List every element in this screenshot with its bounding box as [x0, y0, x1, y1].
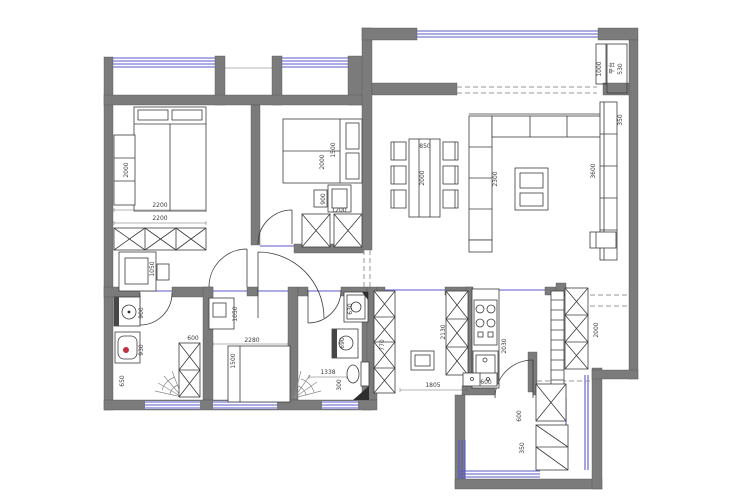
wardrobe-x-cabinet	[302, 214, 362, 247]
bedroom3-furniture	[209, 298, 290, 402]
dim-label: 650	[119, 375, 126, 387]
floor-drain	[353, 386, 369, 400]
vanity-desk	[209, 298, 234, 329]
low-cabinet	[536, 425, 568, 470]
dim-label: 2130	[440, 324, 447, 339]
stool	[411, 351, 434, 370]
dim-label: 530	[617, 63, 624, 75]
shower-spray	[155, 371, 182, 397]
kitchen-balcony-door	[495, 360, 533, 398]
dim-label: 1338	[320, 369, 335, 376]
dim-label: 2000	[419, 170, 426, 185]
dim-label: 3600	[590, 163, 597, 178]
kitchen-furniture	[463, 288, 588, 389]
dim-label: 1805	[425, 382, 440, 389]
dim-label: 770	[379, 339, 386, 351]
dim-label: 350	[617, 114, 624, 126]
wardrobe-x-cabinet	[114, 228, 206, 250]
toilet	[115, 332, 140, 363]
dim-label: 2200	[152, 215, 167, 222]
window-band-living-top	[417, 31, 598, 37]
desk-with-chair	[119, 252, 169, 291]
bed-single	[228, 346, 290, 402]
dim-label: 2300	[492, 171, 499, 186]
bath-x-cabinet	[179, 343, 200, 397]
dim-label: 1200	[331, 207, 346, 214]
dim-label: 600	[480, 379, 492, 386]
window-band-bedroom2	[282, 58, 348, 67]
dim-label: 690	[339, 337, 346, 349]
dim-label: 850	[419, 143, 431, 150]
shower-room-fixtures	[294, 292, 369, 400]
wash-basin	[114, 297, 140, 326]
dim-label: 900	[138, 307, 145, 319]
dim-label: 1500	[230, 353, 237, 368]
window-south-1	[145, 401, 200, 409]
window-south-3	[322, 401, 358, 409]
room-tag-platform: 平台	[608, 62, 616, 74]
floor-plan-canvas: 2000 2200 2200 1050 900 930 650 600 1050…	[0, 0, 740, 500]
dim-label: 2000	[319, 154, 326, 169]
cloakroom-furniture	[374, 291, 468, 393]
dim-label: 1500	[330, 142, 337, 157]
dim-label: 900	[320, 193, 327, 205]
louver-cabinet	[551, 291, 564, 389]
bedroom1-door	[209, 249, 247, 287]
x-cabinet	[536, 384, 566, 421]
dim-label: 2200	[152, 202, 167, 209]
bathroom1-fixtures	[114, 297, 200, 397]
tall-x-cabinet	[565, 288, 588, 369]
dim-label: 1050	[149, 261, 156, 276]
bedroom1-furniture	[114, 107, 206, 291]
dim-label: 630	[347, 303, 354, 315]
dim-label: 2000	[123, 162, 130, 177]
dim-label: 2280	[244, 337, 259, 344]
bedroom2-furniture	[283, 119, 362, 247]
toilet	[347, 362, 369, 386]
dim-label: 600	[187, 335, 199, 342]
balcony-furniture	[536, 384, 568, 470]
shower-room-door	[308, 290, 341, 323]
floor-plan-page: 2000 2200 2200 1050 900 930 650 600 1050…	[0, 0, 740, 500]
bed-double	[134, 107, 206, 211]
chair	[157, 264, 169, 280]
bedroom2-door	[258, 210, 292, 244]
dim-label: 600	[516, 410, 523, 422]
toilet-red-marker	[123, 347, 129, 353]
dim-label: 350	[519, 442, 526, 454]
window-band-top-left	[113, 58, 215, 67]
coffee-table	[515, 168, 548, 210]
bed-double	[283, 119, 362, 183]
dim-label: 930	[138, 344, 145, 356]
dim-label: 1050	[232, 306, 239, 321]
wardrobe-x-cabinet-right	[446, 291, 468, 375]
dim-label: 300	[336, 379, 343, 391]
dim-label: 1000	[596, 61, 603, 76]
dim-label: 2030	[501, 338, 508, 353]
dim-label: 2000	[593, 322, 600, 337]
